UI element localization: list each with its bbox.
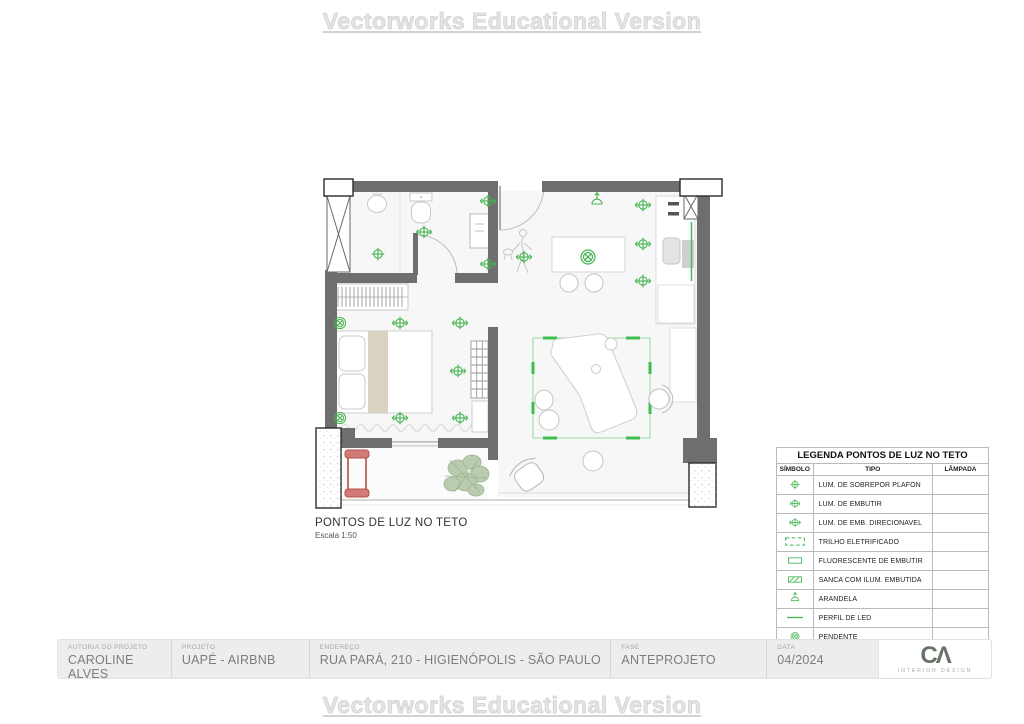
closet: [334, 284, 408, 310]
pillow: [339, 336, 365, 371]
cooktop-knob: [668, 202, 679, 206]
column-bottom-right: [689, 463, 716, 507]
ca-interior-design-logo: CΛ INTERIOR DESIGN: [878, 640, 991, 678]
light-symbol-pendente: [334, 317, 345, 328]
field-data: DATA 04/2024: [766, 640, 878, 678]
fluorescente-symbol-icon: [777, 552, 814, 571]
kitchen-sink: [663, 238, 680, 264]
field-autoria: AUTORIA DO PROJETO CAROLINE ALVES: [58, 640, 171, 678]
legend-title: LEGENDA PONTOS DE LUZ NO TETO: [777, 448, 989, 464]
light-symbol-pendente: [581, 250, 595, 264]
stool: [585, 274, 603, 292]
sink: [368, 196, 387, 213]
plafon-symbol-icon: [777, 476, 814, 495]
sanca-symbol-icon: [777, 571, 814, 590]
legend-col-tipo: TIPO: [813, 464, 932, 476]
shelf-unit: [471, 341, 488, 432]
legend-col-simbolo: SÍMBOLO: [777, 464, 814, 476]
legend-col-lampada: LÂMPADA: [932, 464, 988, 476]
field-endereco: ENDEREÇO RUA PARÁ, 210 - HIGIENÓPOLIS - …: [309, 640, 611, 678]
column-top-right: [680, 179, 722, 196]
column-top-left: [324, 179, 353, 196]
shaft-top-right: [684, 194, 698, 219]
trilho-symbol-icon: [777, 533, 814, 552]
vectorworks-watermark-bottom: Vectorworks Educational Version: [0, 692, 1024, 719]
plan-scale: Escala 1:50: [315, 531, 357, 540]
pouf: [583, 451, 603, 471]
embutir-symbol-icon: [777, 495, 814, 514]
title-block: AUTORIA DO PROJETO CAROLINE ALVES PROJET…: [57, 639, 992, 679]
direcionavel-symbol-icon: [777, 514, 814, 533]
field-fase: FASE ANTEPROJETO: [610, 640, 766, 678]
cooktop-knob: [668, 212, 679, 216]
desk: [670, 328, 696, 402]
perfil-led-symbol-icon: [777, 609, 814, 628]
field-projeto: PROJETO UAPÉ - AIRBNB: [171, 640, 309, 678]
drawing-sheet: Vectorworks Educational Version: [0, 0, 1024, 724]
arandela-symbol-icon: [777, 590, 814, 609]
pillow: [339, 374, 365, 409]
bed-throw: [368, 331, 388, 413]
shaft-left: [327, 196, 350, 272]
stool: [560, 274, 578, 292]
pouf: [535, 390, 553, 410]
plan-title: PONTOS DE LUZ NO TETO: [315, 517, 468, 529]
light-symbol-pendente: [334, 412, 345, 423]
bed: [336, 331, 432, 413]
column-bottom-left: [316, 428, 341, 508]
pouf: [539, 410, 559, 430]
toilet-bowl: [412, 202, 431, 223]
side-table: [605, 338, 617, 350]
legend-table: LEGENDA PONTOS DE LUZ NO TETO SÍMBOLO TI…: [776, 447, 989, 647]
